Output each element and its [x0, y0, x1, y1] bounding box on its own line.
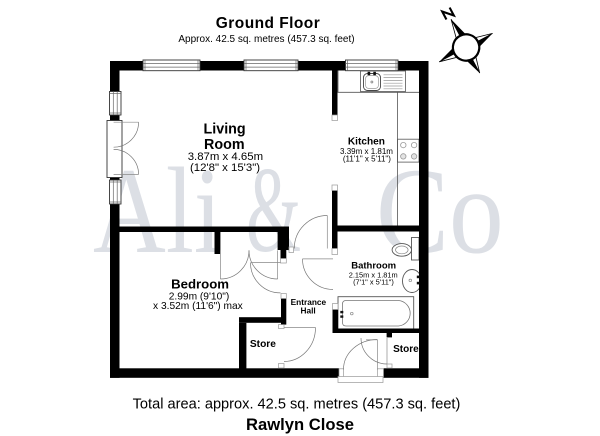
svg-text:Living: Living	[204, 122, 246, 138]
svg-text:Ground Floor: Ground Floor	[216, 15, 320, 32]
svg-text:Approx. 42.5 sq. metres (457.3: Approx. 42.5 sq. metres (457.3 sq. feet)	[178, 34, 354, 45]
svg-text:Rawlyn Close: Rawlyn Close	[246, 415, 354, 434]
svg-text:(7'1" x 5'11"): (7'1" x 5'11")	[353, 277, 394, 286]
svg-text:x 3.52m (11'6") max: x 3.52m (11'6") max	[153, 301, 243, 312]
svg-text:(11'1" x 5'11"): (11'1" x 5'11")	[343, 155, 391, 164]
svg-text:Total area: approx. 42.5 sq. m: Total area: approx. 42.5 sq. metres (457…	[133, 397, 461, 413]
svg-text:Store: Store	[393, 344, 419, 355]
svg-text:Store: Store	[250, 339, 276, 350]
svg-text:Bedroom: Bedroom	[171, 276, 229, 291]
svg-text:(12'8" x 15'3"): (12'8" x 15'3")	[190, 162, 260, 174]
svg-text:Co: Co	[376, 144, 504, 280]
svg-text:Hall: Hall	[300, 305, 315, 315]
